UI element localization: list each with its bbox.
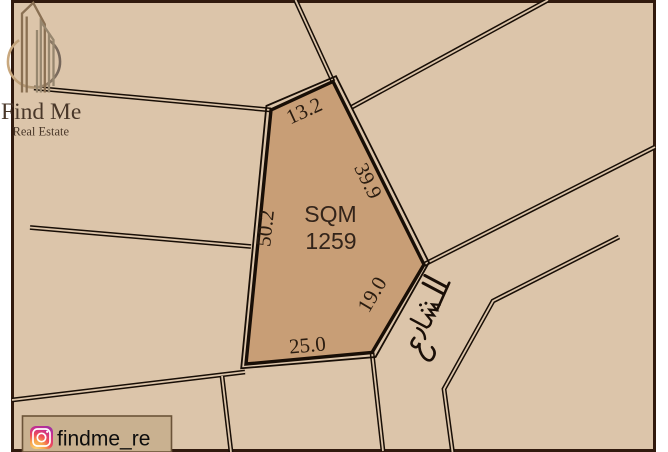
svg-text:Real Estate: Real Estate	[13, 125, 70, 139]
svg-text:1259: 1259	[305, 228, 356, 254]
svg-text:25.0: 25.0	[288, 331, 327, 358]
svg-text:Find Me: Find Me	[1, 99, 81, 125]
svg-text:SQM: SQM	[304, 201, 356, 227]
svg-text:50.2: 50.2	[251, 209, 279, 248]
svg-text:findme_re: findme_re	[57, 428, 150, 451]
